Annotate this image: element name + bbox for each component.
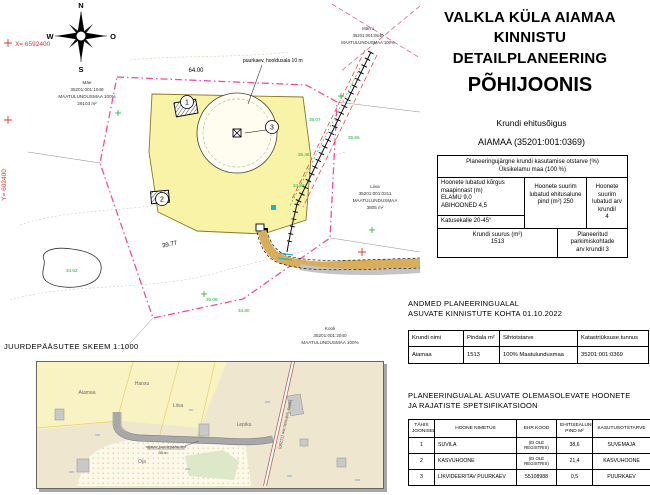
spets-cell-pind: 38,6	[557, 438, 593, 454]
spets-header-otstarve: KASUTUSOTSTARVE	[593, 420, 650, 438]
ehitusoigus-pind-cell: Hoonete suurim lubatud ehitusalune pind …	[525, 178, 587, 228]
parkimine-line1: Planeeritud parkimiskohtade	[560, 232, 625, 247]
andmed-header-pindala: Pindala m²	[464, 331, 500, 347]
title-line-2: DETAILPLANEERING	[410, 49, 650, 69]
site-plan-map: N S O W X= 6592400 Y= 602400	[0, 0, 420, 360]
svg-text:35.07: 35.07	[309, 117, 321, 122]
spets-cell-nr: 1	[409, 438, 435, 454]
parcel-label-left: Mäe 35201:001:1048 MAATULUNDUSMAA 100% 2…	[58, 80, 115, 106]
andmed-title-line2: ASUVATE KINNISTUTE KOHTA 01.10.2022	[408, 309, 562, 319]
access-road	[257, 230, 420, 272]
svg-text:O: O	[110, 32, 116, 41]
andmed-header-tunnus: Katastriüksuse tunnus	[578, 331, 649, 347]
svg-text:29103 m²: 29103 m²	[77, 101, 97, 106]
spets-header-tahis: TÄHIS JOONISEL	[409, 420, 435, 438]
svg-text:Männi: Männi	[362, 26, 374, 31]
dimension-side: 39.77	[162, 240, 179, 249]
andmed-title-line1: ANDMED PLANEERINGUALAL	[408, 299, 562, 309]
suurus-line2: 1513	[440, 239, 555, 247]
spets-cell-name: LIKVIDEERITAV PUURKAEV	[435, 470, 517, 486]
parkimine-cell: Planeeritud parkimiskohtade arv krundil …	[558, 229, 627, 258]
andmed-cell-sihtotstarve: 100% Maatulundusmaa	[500, 347, 578, 364]
inset-map: Aiamaa Hansu Liiva Lepiku Oja rajatav ju…	[36, 361, 384, 489]
svg-text:rajatav juurdepääsutee: rajatav juurdepääsutee	[146, 444, 187, 449]
pind-line2: lubatud ehitusalune	[527, 192, 584, 200]
table-row: 1 SUVILA (EI OLE REGISTRIS) 38,6 SUVEMAJ…	[409, 438, 650, 454]
svg-text:30 m: 30 m	[159, 450, 169, 455]
drawing-title: VALKLA KÜLA AIAMAA KINNISTU DETAILPLANEE…	[410, 8, 650, 99]
spets-header-nimetus: HOONE NIMETUS	[435, 420, 517, 438]
svg-text:35201:001:2040: 35201:001:2040	[313, 333, 347, 338]
spets-cell-pind: 0,5	[557, 470, 593, 486]
parcel-label-right: Liiva 35201:001:0211 MAATULUNDUSMAA 3805…	[353, 184, 399, 210]
svg-text:Aiamaa: Aiamaa	[79, 390, 96, 396]
table-row: Aiamaa 1513 100% Maatulundusmaa 35201:00…	[409, 347, 649, 364]
svg-text:Kooli: Kooli	[325, 326, 335, 331]
svg-text:35.48: 35.48	[298, 152, 310, 157]
svg-text:3805 m²: 3805 m²	[367, 205, 384, 210]
spets-table: TÄHIS JOONISEL HOONE NIMETUS EHR KOOD EH…	[408, 419, 650, 486]
ehitusoigus-heading: Krundi ehitusõigus	[437, 118, 626, 128]
krundi-suurus-cell: Krundi suurus (m²) 1513	[438, 229, 558, 258]
plan-sheet: N S O W X= 6592400 Y= 602400	[0, 0, 650, 495]
svg-text:Hansu: Hansu	[135, 381, 150, 387]
pind-line1: Hoonete suurim	[527, 184, 584, 192]
svg-text:MAATULUNDUSMAA: MAATULUNDUSMAA	[353, 198, 399, 203]
svg-text:S: S	[78, 65, 83, 74]
spets-cell-nr: 3	[409, 470, 435, 486]
svg-text:Liiva: Liiva	[370, 184, 380, 189]
andmed-table: Krundi nimi Pindala m² Sihtotstarve Kata…	[408, 330, 649, 364]
title-line-3: PÕHIJOONIS	[410, 72, 650, 99]
andmed-title: ANDMED PLANEERINGUALAL ASUVATE KINNISTUT…	[408, 299, 562, 319]
svg-text:35.65: 35.65	[348, 135, 360, 140]
andmed-cell-tunnus: 35201:001:0369	[578, 347, 649, 364]
inset-parcel-bright	[37, 362, 227, 430]
svg-text:N: N	[78, 1, 83, 10]
andmed-header-row: Krundi nimi Pindala m² Sihtotstarve Kata…	[409, 331, 649, 347]
andmed-cell-pindala: 1513	[464, 347, 500, 364]
arv-line2: lubatud arv krundil	[589, 199, 625, 214]
inset-map-canvas: Aiamaa Hansu Liiva Lepiku Oja rajatav ju…	[37, 362, 383, 486]
otstarve-line1: Planeeringujärgne krundi kasutamise otst…	[440, 159, 625, 167]
svg-text:Liiva: Liiva	[173, 403, 184, 409]
spets-cell-otstarve: PUURKAEV	[593, 470, 650, 486]
spets-title-line2: JA RAJATISTE SPETSIFIKATSIOON	[408, 401, 630, 411]
svg-text:MAATULUNDUSMAA 100%: MAATULUNDUSMAA 100%	[58, 94, 115, 99]
table-row: 2 KASVUHOONE (EI OLE REGISTRIS) 21,4 KAS…	[409, 454, 650, 470]
pos-2-label: 2	[160, 197, 164, 204]
spets-title: PLANEERINGUALAL ASUVATE OLEMASOLEVATE HO…	[408, 391, 630, 411]
andmed-header-nimi: Krundi nimi	[409, 331, 464, 347]
suurus-line1: Krundi suurus (m²)	[440, 232, 555, 240]
otstarve-line2: Üksikelamu maa (100 %)	[440, 167, 625, 175]
svg-text:Oja: Oja	[138, 459, 146, 465]
spets-cell-ehr: (EI OLE REGISTRIS)	[517, 454, 557, 470]
pos-3-label: 3	[270, 125, 274, 132]
parcel-label-bottom: Kooli 35201:001:2040 MAATULUNDUSMAA 100%	[301, 326, 358, 345]
svg-text:35201:001:0540: 35201:001:0540	[352, 33, 384, 38]
title-line-1: VALKLA KÜLA AIAMAA KINNISTU	[410, 8, 650, 49]
parcel-label-topright: Männi 35201:001:0540 MAATULUNDUSMAA 100%	[341, 26, 395, 45]
korgus-line1: Hoonete lubatud kõrgus	[441, 180, 521, 188]
korgus-line2: maapinnast (m)	[441, 188, 521, 196]
culvert-marker	[271, 205, 276, 210]
ehitusoigus-subheading: AIAMAA (35201:001:0369)	[437, 137, 626, 147]
pos-1-label: 1	[185, 100, 189, 107]
andmed-header-sihtotstarve: Sihtotstarve	[500, 331, 578, 347]
spets-cell-name: KASVUHOONE	[435, 454, 517, 470]
ehitusoigus-korgus-cell: Hoonete lubatud kõrgus maapinnast (m) EL…	[438, 178, 525, 228]
svg-text:34.62: 34.62	[66, 268, 78, 273]
svg-text:W: W	[46, 32, 54, 41]
spets-cell-otstarve: KASVUHOONE	[593, 454, 650, 470]
spets-header-row: TÄHIS JOONISEL HOONE NIMETUS EHR KOOD EH…	[409, 420, 650, 438]
dimension-top: 64.00	[188, 68, 204, 74]
svg-text:Lepiku: Lepiku	[237, 422, 252, 428]
parkimine-line2: arv krundil 3	[560, 247, 625, 255]
arv-line1: Hoonete suurim	[589, 184, 625, 199]
svg-text:MAATULUNDUSMAA 100%: MAATULUNDUSMAA 100%	[341, 40, 395, 45]
ehitusoigus-otstarve: Planeeringujärgne krundi kasutamise otst…	[438, 156, 627, 178]
spets-cell-ehr: 55108988	[517, 470, 557, 486]
pind-line3: pind (m²) 250	[527, 199, 584, 207]
svg-text:Mäe: Mäe	[83, 80, 92, 85]
spets-header-ehr: EHR KOOD	[517, 420, 557, 438]
pump-structure	[256, 224, 264, 231]
andmed-cell-nimi: Aiamaa	[409, 347, 464, 364]
table-row: 3 LIKVIDEERITAV PUURKAEV 55108988 0,5 PU…	[409, 470, 650, 486]
arv-line3: 4	[589, 214, 625, 222]
spets-title-line1: PLANEERINGUALAL ASUVATE OLEMASOLEVATE HO…	[408, 391, 630, 401]
svg-text:34.93: 34.93	[293, 183, 305, 188]
svg-text:MAATULUNDUSMAA 100%: MAATULUNDUSMAA 100%	[301, 340, 358, 345]
spets-cell-name: SUVILA	[435, 438, 517, 454]
coordinate-x-label: X= 6592400	[15, 41, 51, 48]
well-note: puurkaev, hooldusala 10 m	[243, 58, 303, 64]
ehitusoigus-arv-cell: Hoonete suurim lubatud arv krundil 4	[587, 178, 627, 228]
well-icon	[233, 129, 241, 137]
svg-text:35201:001:0211: 35201:001:0211	[359, 191, 392, 196]
spets-header-pind: EHITISEALUNE PIND M²	[557, 420, 593, 438]
svg-text:35.08: 35.08	[206, 297, 218, 302]
utility-corridor-dashes	[332, 4, 420, 72]
katusekalle-cell: Katusekalle 20-45°	[438, 215, 524, 228]
spets-cell-nr: 2	[409, 454, 435, 470]
spets-cell-pind: 21,4	[557, 454, 593, 470]
korgus-line3: ELAMU 9,0	[441, 195, 521, 203]
inset-map-title: JUURDEPÄÄSUTEE SKEEM 1:1000	[4, 342, 139, 351]
svg-text:34.80: 34.80	[238, 308, 250, 313]
korgus-line4: ABIHOONED 4,5	[441, 203, 521, 211]
compass-rose-icon: N S O W	[46, 1, 116, 74]
svg-text:35201:001:1048: 35201:001:1048	[70, 87, 104, 92]
coordinate-y-label: Y= 602400	[1, 169, 8, 201]
spets-cell-otstarve: SUVEMAJA	[593, 438, 650, 454]
spets-cell-ehr: (EI OLE REGISTRIS)	[517, 438, 557, 454]
ehitusoigus-table: Planeeringujärgne krundi kasutamise otst…	[437, 155, 628, 258]
